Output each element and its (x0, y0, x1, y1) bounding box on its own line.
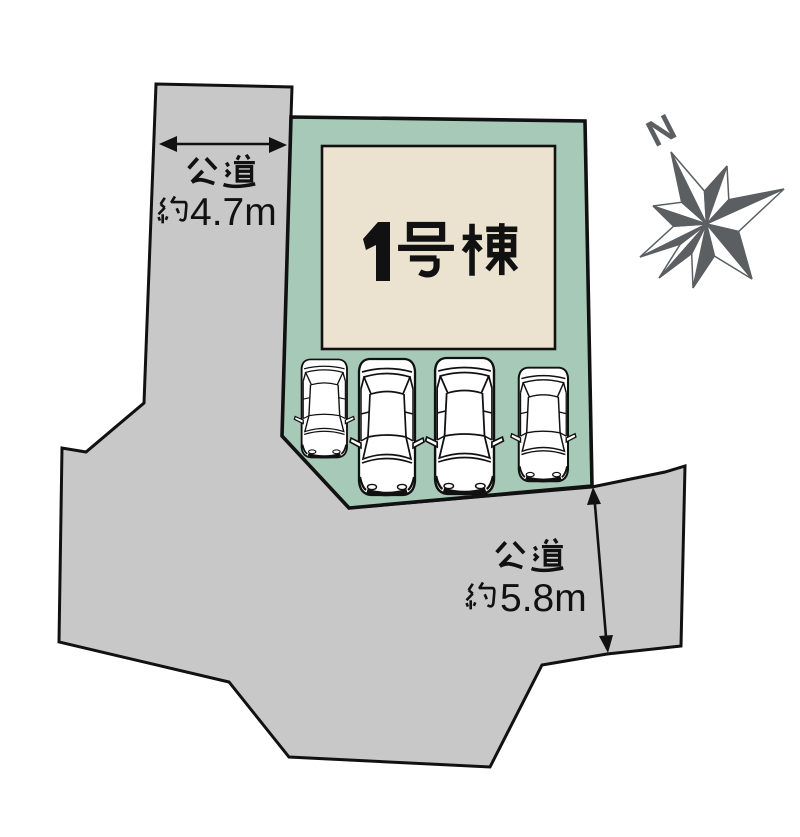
svg-text:5.8m: 5.8m (500, 577, 587, 620)
svg-text:4.7m: 4.7m (190, 191, 277, 234)
